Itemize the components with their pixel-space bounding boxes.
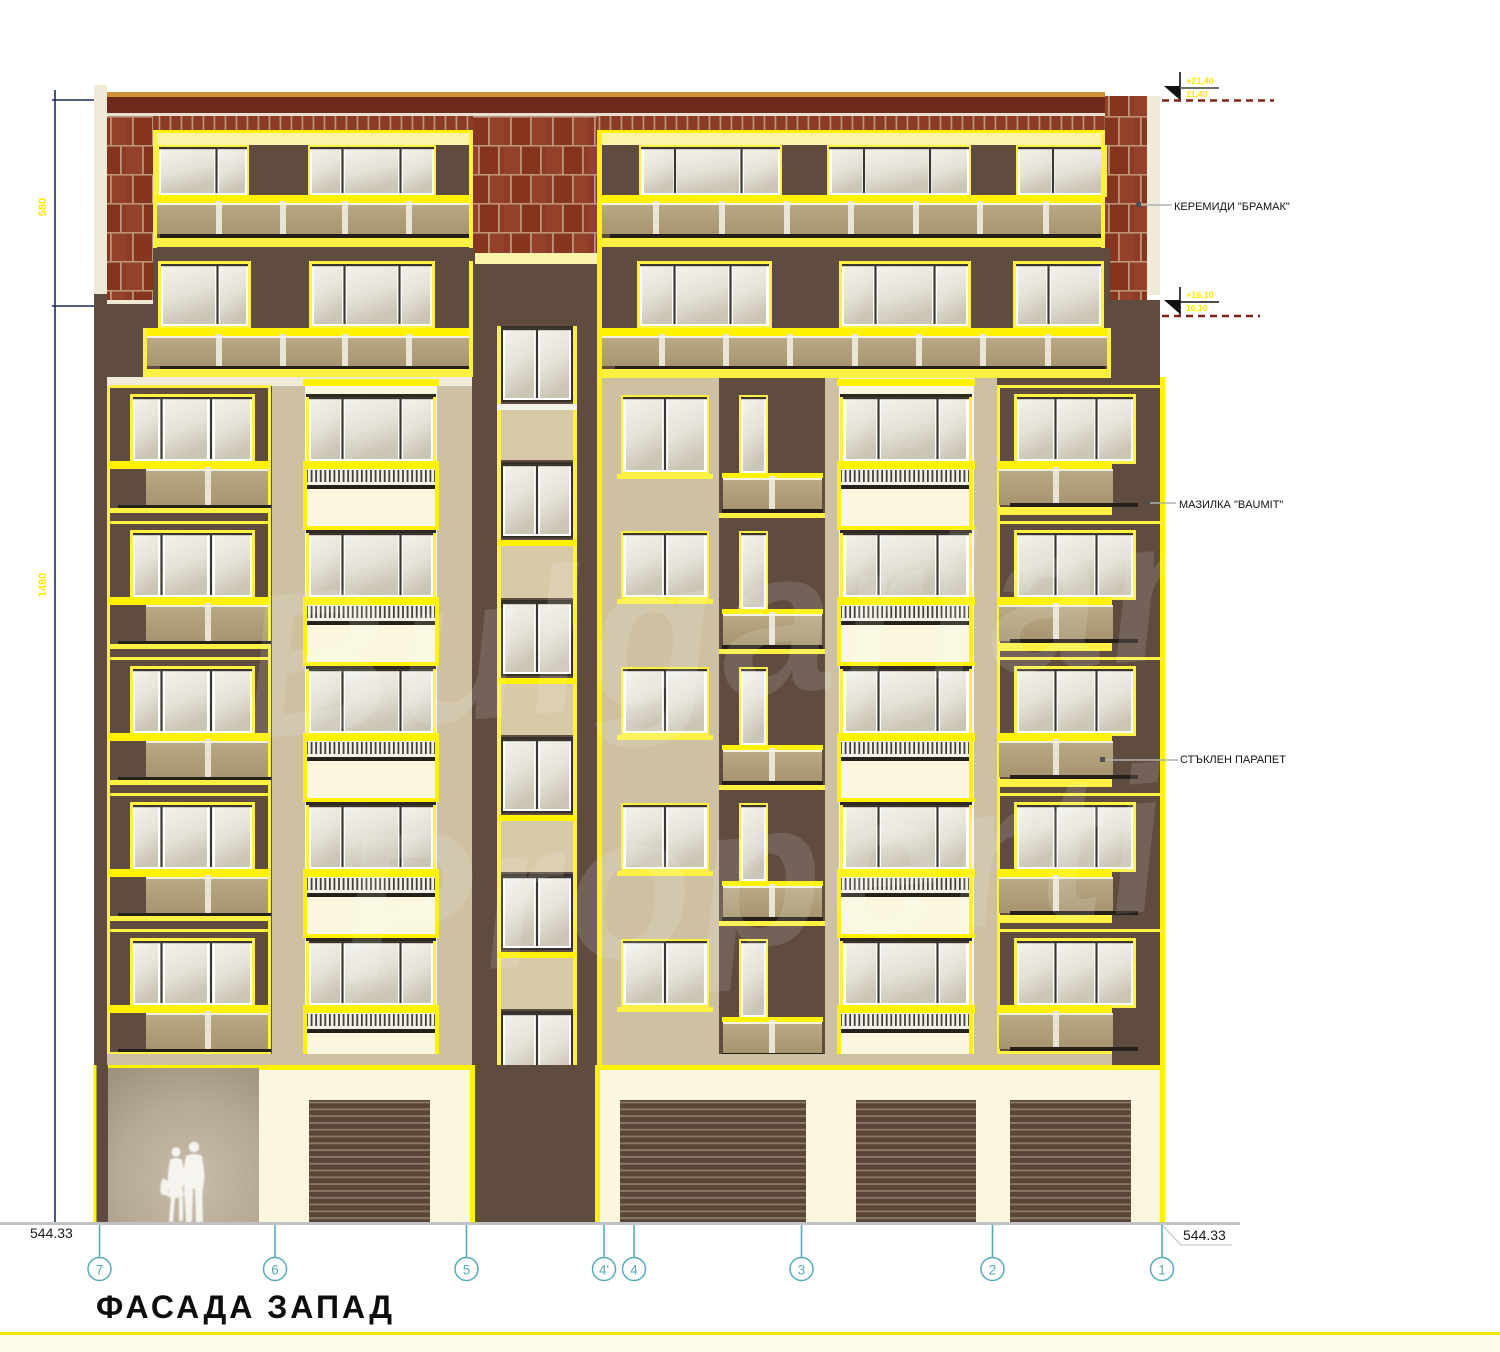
svg-text:21,40: 21,40 — [1186, 89, 1208, 99]
svg-text:4: 4 — [630, 1263, 638, 1278]
svg-text:1: 1 — [1158, 1263, 1166, 1278]
svg-text:КЕРЕМИДИ "БРАМАК": КЕРЕМИДИ "БРАМАК" — [1174, 201, 1290, 213]
svg-text:544.33: 544.33 — [1183, 1227, 1226, 1243]
svg-text:5: 5 — [463, 1263, 471, 1278]
svg-text:16,10: 16,10 — [1186, 303, 1208, 313]
svg-text:544.33: 544.33 — [30, 1225, 73, 1241]
svg-text:4': 4' — [599, 1263, 609, 1278]
svg-text:2: 2 — [989, 1263, 997, 1278]
svg-text:+16,10: +16,10 — [1186, 290, 1214, 300]
svg-text:7: 7 — [96, 1263, 104, 1278]
svg-text:580: 580 — [37, 198, 49, 216]
svg-text:1480: 1480 — [37, 573, 49, 597]
svg-text:+21,40: +21,40 — [1186, 76, 1214, 86]
svg-text:ФАСАДА ЗАПАД: ФАСАДА ЗАПАД — [96, 1289, 395, 1325]
svg-text:6: 6 — [271, 1263, 279, 1278]
svg-text:3: 3 — [798, 1263, 806, 1278]
